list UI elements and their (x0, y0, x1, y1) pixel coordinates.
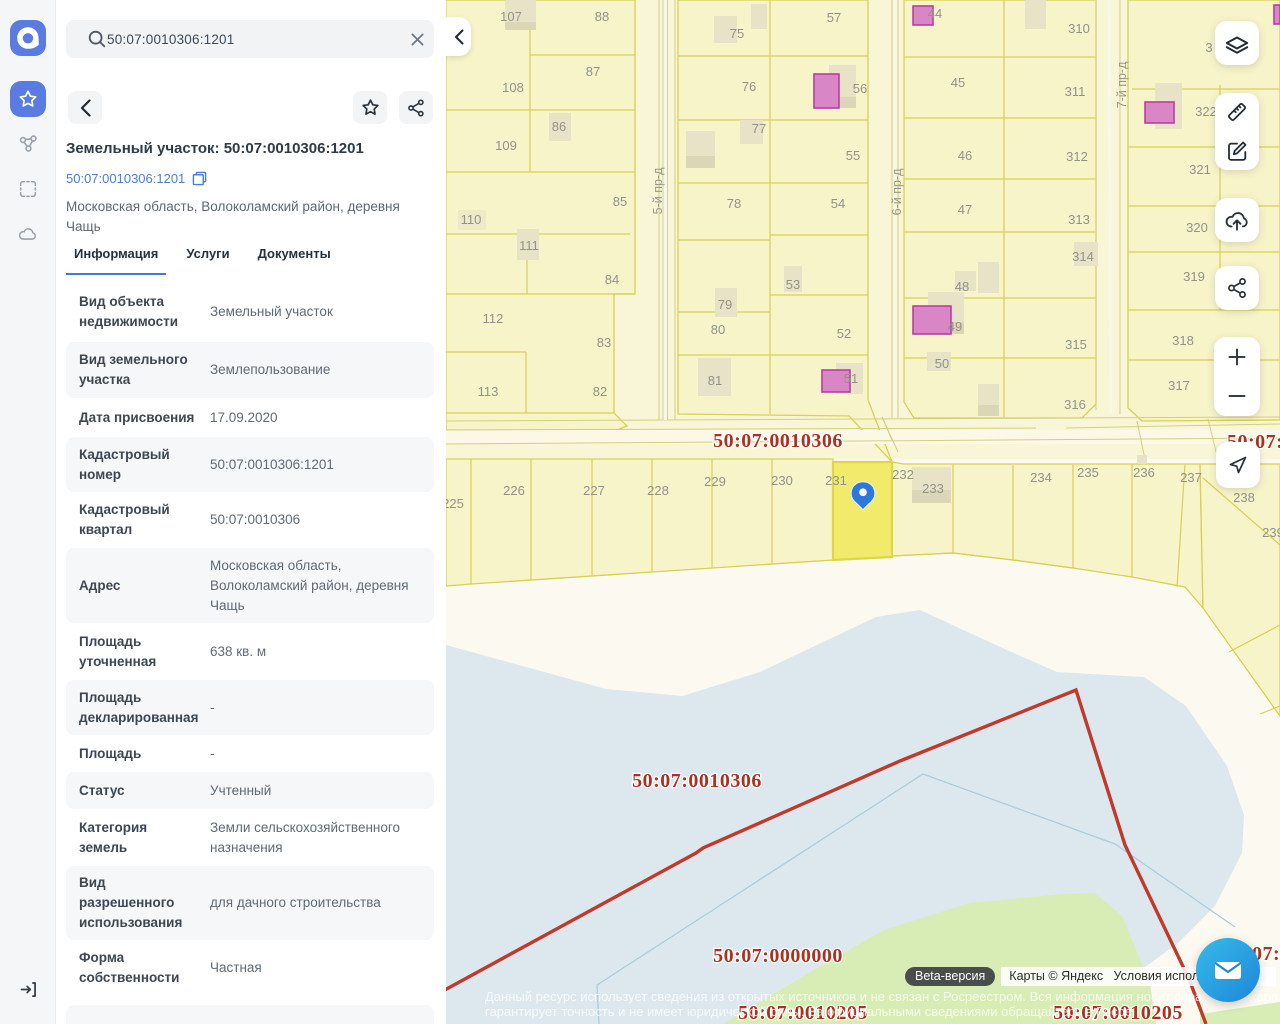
svg-text:6-й пр-д: 6-й пр-д (890, 168, 904, 215)
svg-text:80: 80 (711, 322, 725, 337)
svg-text:315: 315 (1065, 337, 1087, 352)
svg-text:49: 49 (948, 319, 962, 334)
svg-text:237: 237 (1180, 470, 1202, 485)
svg-text:51: 51 (844, 371, 858, 386)
svg-text:7-й пр-д: 7-й пр-д (1115, 61, 1129, 108)
svg-text:82: 82 (593, 384, 607, 399)
svg-text:312: 312 (1066, 149, 1088, 164)
svg-text:110: 110 (461, 212, 482, 227)
svg-text:44: 44 (928, 6, 942, 21)
svg-text:322: 322 (1195, 104, 1217, 119)
svg-text:85: 85 (613, 194, 627, 209)
svg-text:53: 53 (786, 277, 800, 292)
svg-text:318: 318 (1172, 333, 1194, 348)
svg-text:88: 88 (595, 9, 609, 24)
svg-text:233: 233 (922, 481, 944, 496)
svg-text:3: 3 (1205, 40, 1212, 55)
svg-text:316: 316 (1064, 397, 1086, 412)
svg-text:226: 226 (503, 483, 525, 498)
svg-text:113: 113 (478, 384, 499, 399)
svg-text:50: 50 (935, 356, 949, 371)
svg-text:311: 311 (1065, 84, 1086, 99)
svg-text:231: 231 (825, 473, 847, 488)
svg-text:45: 45 (951, 75, 965, 90)
svg-text:86: 86 (552, 119, 566, 134)
svg-text:234: 234 (1030, 470, 1052, 485)
svg-text:112: 112 (483, 311, 504, 326)
svg-text:313: 313 (1068, 212, 1090, 227)
svg-text:109: 109 (495, 138, 517, 153)
svg-text:84: 84 (605, 272, 619, 287)
svg-text:108: 108 (502, 80, 524, 95)
svg-text:52: 52 (837, 326, 851, 341)
svg-text:230: 230 (771, 473, 793, 488)
svg-text:87: 87 (586, 64, 600, 79)
svg-text:81: 81 (708, 373, 722, 388)
svg-text:79: 79 (718, 297, 732, 312)
svg-text:55: 55 (846, 148, 860, 163)
svg-text:235: 235 (1077, 465, 1099, 480)
svg-text:321: 321 (1189, 162, 1211, 177)
svg-text:56: 56 (853, 81, 867, 96)
svg-text:232: 232 (892, 467, 914, 482)
svg-text:107: 107 (500, 9, 522, 24)
svg-text:228: 228 (647, 483, 669, 498)
svg-text:78: 78 (727, 196, 741, 211)
svg-text:50:07:0010306: 50:07:0010306 (632, 770, 762, 792)
svg-text:77: 77 (752, 121, 766, 136)
svg-text:317: 317 (1168, 378, 1190, 393)
svg-text:46: 46 (958, 148, 972, 163)
svg-text:47: 47 (958, 202, 972, 217)
svg-text:5-й пр-д: 5-й пр-д (651, 167, 665, 214)
svg-text:50:07:0010306: 50:07:0010306 (713, 430, 843, 452)
svg-text:57: 57 (827, 10, 841, 25)
svg-text:50:07:0000000: 50:07:0000000 (713, 945, 843, 967)
svg-text:319: 319 (1183, 269, 1205, 284)
svg-text:76: 76 (742, 79, 756, 94)
svg-text:229: 229 (704, 474, 726, 489)
svg-text:320: 320 (1186, 220, 1208, 235)
svg-text:83: 83 (597, 335, 611, 350)
svg-text:310: 310 (1068, 21, 1090, 36)
svg-text:225: 225 (446, 496, 464, 511)
svg-text:236: 236 (1133, 465, 1155, 480)
svg-text:54: 54 (831, 196, 845, 211)
svg-text:48: 48 (955, 279, 969, 294)
svg-text:239: 239 (1262, 525, 1280, 540)
svg-text:238: 238 (1233, 490, 1255, 505)
svg-text:314: 314 (1072, 249, 1094, 264)
svg-text:227: 227 (583, 483, 605, 498)
svg-text:111: 111 (519, 238, 539, 253)
svg-text:75: 75 (730, 26, 744, 41)
